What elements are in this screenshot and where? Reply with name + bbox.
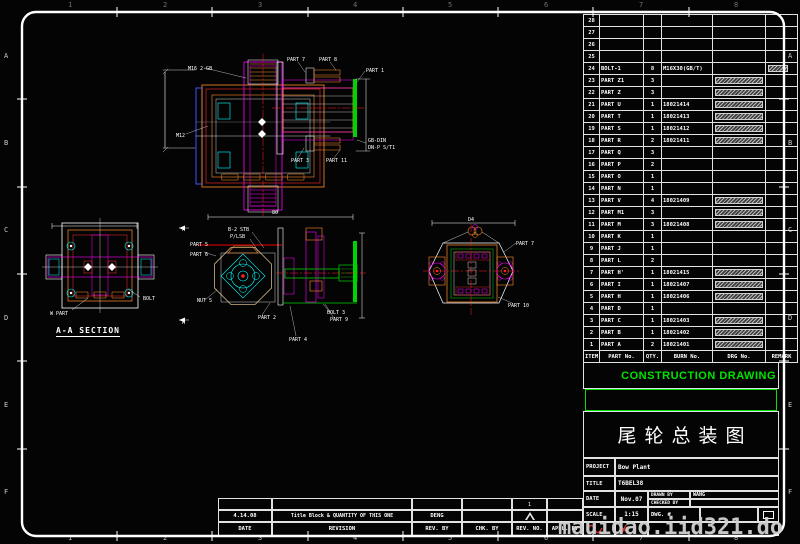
item-cell: 26	[584, 39, 600, 51]
burn-cell	[662, 243, 713, 255]
drg-cell	[713, 291, 766, 303]
burn-cell	[662, 207, 713, 219]
revision-header-cell: DATE	[218, 522, 272, 536]
burn-cell	[662, 183, 713, 195]
qty-cell: 1	[644, 327, 662, 339]
qty-cell: 2	[644, 159, 662, 171]
project-label: PROJECT	[583, 458, 615, 476]
drg-cell	[713, 171, 766, 183]
drg-cell	[713, 99, 766, 111]
item-cell: 9	[584, 243, 600, 255]
remark-cell	[766, 267, 798, 279]
remark-cell	[766, 291, 798, 303]
part-cell: PART M	[600, 219, 644, 231]
drg-cell	[713, 111, 766, 123]
qty-cell	[644, 51, 662, 63]
parts-row: 26	[584, 39, 798, 51]
revision-spare-cell	[462, 498, 512, 510]
parts-row: 11PART M318021408	[584, 219, 798, 231]
hatch-block	[715, 221, 763, 228]
item-cell: 14	[584, 183, 600, 195]
burn-cell	[662, 87, 713, 99]
part-cell: PART Z1	[600, 75, 644, 87]
item-cell: 22	[584, 87, 600, 99]
qty-cell: 1	[644, 171, 662, 183]
item-cell: 13	[584, 195, 600, 207]
drawing-label: PART 7	[287, 57, 305, 63]
construction-drawing-text: CONSTRUCTION DRAWING	[621, 370, 776, 382]
drawing-label: PART 2	[258, 315, 276, 321]
drg-cell	[713, 87, 766, 99]
remark-cell	[766, 75, 798, 87]
title-value: T6BEL38	[615, 476, 779, 491]
parts-row: 28	[584, 15, 798, 27]
hatch-block	[715, 113, 763, 120]
item-cell: 17	[584, 147, 600, 159]
remark-cell	[766, 99, 798, 111]
remark-cell	[766, 135, 798, 147]
remark-cell	[766, 231, 798, 243]
drg-cell	[713, 327, 766, 339]
burn-cell	[662, 75, 713, 87]
project-value: Bow Plant	[615, 458, 779, 476]
section-view-label: A-A SECTION	[56, 326, 120, 337]
parts-row: 13PART V418021409	[584, 195, 798, 207]
remark-cell	[766, 243, 798, 255]
remark-cell	[766, 183, 798, 195]
drg-cell	[713, 279, 766, 291]
drg-cell	[713, 267, 766, 279]
drawing-label: PART 11	[326, 158, 347, 164]
remark-cell	[766, 51, 798, 63]
drawing-label: A	[182, 320, 185, 326]
item-cell: 15	[584, 171, 600, 183]
part-cell: PART C	[600, 315, 644, 327]
burn-cell: 18021409	[662, 195, 713, 207]
item-cell: 6	[584, 279, 600, 291]
item-cell: 1	[584, 339, 600, 351]
construction-drawing-stamp: CONSTRUCTION DRAWING	[583, 362, 779, 389]
qty-cell: 1	[644, 99, 662, 111]
part-cell: PART D	[600, 303, 644, 315]
qty-cell: 2	[644, 339, 662, 351]
parts-header-cell: PART No.	[600, 351, 644, 363]
drg-cell	[713, 75, 766, 87]
hatch-block	[715, 209, 763, 216]
item-cell: 4	[584, 303, 600, 315]
part-cell	[600, 51, 644, 63]
drg-cell	[713, 27, 766, 39]
burn-cell: 18021415	[662, 267, 713, 279]
qty-cell: 2	[644, 255, 662, 267]
remark-cell	[766, 195, 798, 207]
revision-header-cell: REVISION	[272, 522, 412, 536]
stamp-box	[585, 389, 777, 411]
parts-header-cell: QTY.	[644, 351, 662, 363]
zone-number-bottom: 2	[163, 534, 167, 542]
qty-cell: 1	[644, 303, 662, 315]
parts-row: 5PART H118021406	[584, 291, 798, 303]
hatch-block	[715, 101, 763, 108]
item-cell: 19	[584, 123, 600, 135]
zone-number-top: 1	[68, 1, 72, 9]
burn-cell: 18021403	[662, 315, 713, 327]
parts-row: 12PART M13	[584, 207, 798, 219]
parts-row: 24BOLT-18M16X30(GB/T)	[584, 63, 798, 75]
burn-cell	[662, 15, 713, 27]
item-cell: 16	[584, 159, 600, 171]
drawing-label: PART 9	[330, 317, 348, 323]
wheel-rear-view	[423, 220, 521, 315]
part-cell: PART L	[600, 255, 644, 267]
drawing-label: B-2 STB	[228, 227, 249, 233]
qty-cell: 1	[644, 279, 662, 291]
revision-number-value: 1	[512, 498, 547, 510]
cad-drawing-sheet: M16 2-GBM12PART 7PART 8PART 1GB-DINDN-P …	[0, 0, 800, 544]
hatch-block	[715, 293, 763, 300]
parts-row: 19PART S118021412	[584, 123, 798, 135]
remark-cell	[766, 111, 798, 123]
qty-cell: 8	[644, 63, 662, 75]
drawn-by-label: DRAWN BY	[648, 491, 690, 499]
part-cell: PART O	[600, 171, 644, 183]
drg-cell	[713, 207, 766, 219]
part-cell: PART M1	[600, 207, 644, 219]
drg-cell	[713, 183, 766, 195]
qty-cell	[644, 39, 662, 51]
checked-by-label: CHECKED BY	[648, 499, 690, 507]
parts-list-table: 2827262524BOLT-18M16X30(GB/T)23PART Z132…	[583, 14, 798, 363]
part-cell	[600, 27, 644, 39]
drawing-label: BOLT	[143, 296, 155, 302]
hatch-block	[715, 197, 763, 204]
qty-cell: 2	[644, 135, 662, 147]
burn-cell: 18021413	[662, 111, 713, 123]
drawing-label: DN-P S/T1	[368, 145, 395, 151]
zone-number-top: 5	[448, 1, 452, 9]
parts-row: 21PART U118021414	[584, 99, 798, 111]
parts-row: 27	[584, 27, 798, 39]
hatch-block	[715, 269, 763, 276]
burn-cell	[662, 51, 713, 63]
drg-cell	[713, 243, 766, 255]
qty-cell: 1	[644, 267, 662, 279]
parts-row: 20PART T118021413	[584, 111, 798, 123]
part-cell: PART N	[600, 183, 644, 195]
revision-spare-cell	[218, 498, 272, 510]
remark-cell	[766, 171, 798, 183]
burn-cell: 18021406	[662, 291, 713, 303]
qty-cell: 3	[644, 147, 662, 159]
zone-letter-left: E	[4, 401, 8, 409]
drawing-label: M16 2-GB	[188, 66, 212, 72]
parts-header-row: ITEMPART No.QTY.BURN No.DRG No.REMARK	[584, 351, 798, 363]
item-cell: 25	[584, 51, 600, 63]
drg-cell	[713, 315, 766, 327]
burn-cell	[662, 303, 713, 315]
zone-number-bottom: 1	[68, 534, 72, 542]
revision-spare-cell	[547, 498, 583, 510]
hatch-block	[768, 65, 788, 72]
hatch-block	[715, 329, 763, 336]
drg-cell	[713, 135, 766, 147]
parts-row: 25	[584, 51, 798, 63]
drawing-label: PART 6	[190, 252, 208, 258]
drg-cell	[713, 51, 766, 63]
parts-header-cell: ITEM	[584, 351, 600, 363]
item-cell: 7	[584, 267, 600, 279]
remark-cell	[766, 207, 798, 219]
hatch-block	[715, 137, 763, 144]
remark-cell	[766, 87, 798, 99]
hatch-block	[715, 341, 763, 348]
zone-letter-left: C	[4, 226, 8, 234]
burn-cell: 18021402	[662, 327, 713, 339]
drawing-label: PART 10	[508, 303, 529, 309]
item-cell: 3	[584, 315, 600, 327]
zone-letter-left: D	[4, 314, 8, 322]
parts-row: 18PART R218021411	[584, 135, 798, 147]
parts-row: 16PART P2	[584, 159, 798, 171]
burn-cell: 18021412	[662, 123, 713, 135]
zone-letter-left: A	[4, 52, 8, 60]
zone-letter-left: F	[4, 488, 8, 496]
parts-header-cell: REMARK	[766, 351, 798, 363]
parts-row: 6PART I118021407	[584, 279, 798, 291]
remark-cell	[766, 279, 798, 291]
drg-cell	[713, 15, 766, 27]
wheel-side-section-view	[208, 214, 366, 336]
item-cell: 12	[584, 207, 600, 219]
parts-row: 1PART A218021401	[584, 339, 798, 351]
drawing-label: 80	[272, 210, 278, 216]
drawing-label: W PART	[50, 311, 68, 317]
qty-cell: 3	[644, 219, 662, 231]
item-cell: 27	[584, 27, 600, 39]
zone-letter-right: E	[788, 401, 792, 409]
parts-row: 22PART Z3	[584, 87, 798, 99]
drg-cell	[713, 123, 766, 135]
revision-entry-cell	[512, 510, 547, 522]
qty-cell: 1	[644, 111, 662, 123]
remark-cell	[766, 339, 798, 351]
drawing-label: P/LSB	[230, 234, 245, 240]
part-cell: PART S	[600, 123, 644, 135]
qty-cell: 1	[644, 243, 662, 255]
revision-header-cell: REV. BY	[412, 522, 462, 536]
part-cell	[600, 15, 644, 27]
remark-cell	[766, 303, 798, 315]
part-cell: PART U	[600, 99, 644, 111]
burn-cell: M16X30(GB/T)	[662, 63, 713, 75]
part-cell: PART I	[600, 279, 644, 291]
remark-cell	[766, 327, 798, 339]
remark-cell	[766, 27, 798, 39]
qty-cell: 1	[644, 183, 662, 195]
revision-header-cell: REV. NO.	[512, 522, 547, 536]
date-value: Nov.07	[615, 491, 648, 507]
drawing-label: A	[182, 227, 185, 233]
zone-number-top: 2	[163, 1, 167, 9]
drg-cell	[713, 147, 766, 159]
burn-cell	[662, 159, 713, 171]
parts-row: 4PART D1	[584, 303, 798, 315]
drawing-label: GB-DIN	[368, 138, 386, 144]
part-cell: PART K	[600, 231, 644, 243]
part-cell: PART A	[600, 339, 644, 351]
revision-header-cell: CHK. BY	[462, 522, 512, 536]
revision-triangle-icon	[525, 512, 535, 520]
zone-letter-left: B	[4, 139, 8, 147]
qty-cell: 1	[644, 315, 662, 327]
drg-cell	[713, 63, 766, 75]
burn-cell	[662, 255, 713, 267]
parts-row: 9PART J1	[584, 243, 798, 255]
burn-cell	[662, 39, 713, 51]
aa-section-view	[42, 218, 189, 323]
remark-cell	[766, 39, 798, 51]
part-cell: PART R	[600, 135, 644, 147]
burn-cell: 18021414	[662, 99, 713, 111]
revision-entry-cell: Title Block & QUANTITY OF THIS ONE	[272, 510, 412, 522]
item-cell: 20	[584, 111, 600, 123]
item-cell: 23	[584, 75, 600, 87]
date-label: DATE	[583, 491, 615, 507]
drawing-label: PART 4	[289, 337, 307, 343]
part-cell: PART Q	[600, 147, 644, 159]
drawing-title-cell: 尾轮总装图	[583, 411, 779, 458]
part-cell	[600, 39, 644, 51]
item-cell: 21	[584, 99, 600, 111]
zone-number-top: 7	[639, 1, 643, 9]
qty-cell: 3	[644, 75, 662, 87]
part-cell: PART V	[600, 195, 644, 207]
drawing-label: PART 7	[516, 241, 534, 247]
drawing-labels-layer: M16 2-GBM12PART 7PART 8PART 1GB-DINDN-P …	[50, 57, 534, 343]
drg-cell	[713, 339, 766, 351]
remark-cell	[766, 63, 798, 75]
hatch-block	[715, 125, 763, 132]
burn-cell: 18021408	[662, 219, 713, 231]
drawing-label: PART 8	[319, 57, 337, 63]
hatch-block	[715, 281, 763, 288]
part-cell: PART H	[600, 291, 644, 303]
parts-row: 2PART B118021402	[584, 327, 798, 339]
parts-row: 14PART N1	[584, 183, 798, 195]
hatch-block	[715, 89, 763, 96]
part-cell: PART B	[600, 327, 644, 339]
remark-cell	[766, 123, 798, 135]
item-cell: 8	[584, 255, 600, 267]
item-cell: 28	[584, 15, 600, 27]
hatch-block	[715, 317, 763, 324]
burn-cell	[662, 231, 713, 243]
drg-cell	[713, 231, 766, 243]
drg-cell	[713, 39, 766, 51]
remark-cell	[766, 219, 798, 231]
qty-cell: 3	[644, 207, 662, 219]
burn-cell	[662, 27, 713, 39]
burn-cell: 18021407	[662, 279, 713, 291]
qty-cell: 1	[644, 123, 662, 135]
qty-cell: 1	[644, 291, 662, 303]
item-cell: 5	[584, 291, 600, 303]
revision-entry-cell: 4.14.08	[218, 510, 272, 522]
drawing-label: PART 3	[291, 158, 309, 164]
qty-cell: 3	[644, 87, 662, 99]
burn-cell: 18021411	[662, 135, 713, 147]
parts-row: 15PART O1	[584, 171, 798, 183]
remark-cell	[766, 147, 798, 159]
drawing-label: D4	[468, 217, 474, 223]
drg-cell	[713, 195, 766, 207]
parts-row: 17PART Q3	[584, 147, 798, 159]
qty-cell	[644, 27, 662, 39]
burn-cell	[662, 171, 713, 183]
parts-row: 8PART L2	[584, 255, 798, 267]
item-cell: 24	[584, 63, 600, 75]
drg-cell	[713, 219, 766, 231]
watermark-text: mauidao.iid321.do	[558, 515, 783, 540]
revision-spare-cell	[412, 498, 462, 510]
qty-cell: 4	[644, 195, 662, 207]
zone-number-top: 3	[258, 1, 262, 9]
item-cell: 10	[584, 231, 600, 243]
tail-wheel-top-view	[163, 54, 370, 218]
parts-row: 3PART C118021403	[584, 315, 798, 327]
zone-number-top: 8	[734, 1, 738, 9]
revision-entry-cell: DENG	[412, 510, 462, 522]
drg-cell	[713, 255, 766, 267]
part-cell: PART Z	[600, 87, 644, 99]
parts-row: 10PART K1	[584, 231, 798, 243]
remark-cell	[766, 159, 798, 171]
zone-number-top: 4	[353, 1, 357, 9]
hatch-block	[715, 77, 763, 84]
drawing-label: NUT 5	[197, 298, 212, 304]
remark-cell	[766, 255, 798, 267]
drg-cell	[713, 303, 766, 315]
zone-number-top: 6	[544, 1, 548, 9]
burn-cell	[662, 147, 713, 159]
parts-header-cell: BURN No.	[662, 351, 713, 363]
wheel-front-view	[198, 245, 282, 305]
item-cell: 11	[584, 219, 600, 231]
part-cell: PART P	[600, 159, 644, 171]
parts-row: 23PART Z13	[584, 75, 798, 87]
parts-row: 7PART H'118021415	[584, 267, 798, 279]
remark-cell	[766, 315, 798, 327]
qty-cell: 1	[644, 231, 662, 243]
item-cell: 2	[584, 327, 600, 339]
remark-cell	[766, 15, 798, 27]
zone-letter-right: F	[788, 488, 792, 496]
item-cell: 18	[584, 135, 600, 147]
drawing-label: BOLT 3	[327, 310, 345, 316]
title-label: TITLE	[583, 476, 615, 491]
burn-cell: 18021401	[662, 339, 713, 351]
revision-entry-cell	[462, 510, 512, 522]
part-cell: BOLT-1	[600, 63, 644, 75]
checked-by-value	[690, 499, 779, 507]
part-cell: PART J	[600, 243, 644, 255]
drawing-title: 尾轮总装图	[609, 421, 752, 448]
part-cell: PART T	[600, 111, 644, 123]
part-cell: PART H'	[600, 267, 644, 279]
revision-spare-cell	[272, 498, 412, 510]
drawing-label: M12	[176, 133, 185, 139]
drg-cell	[713, 159, 766, 171]
